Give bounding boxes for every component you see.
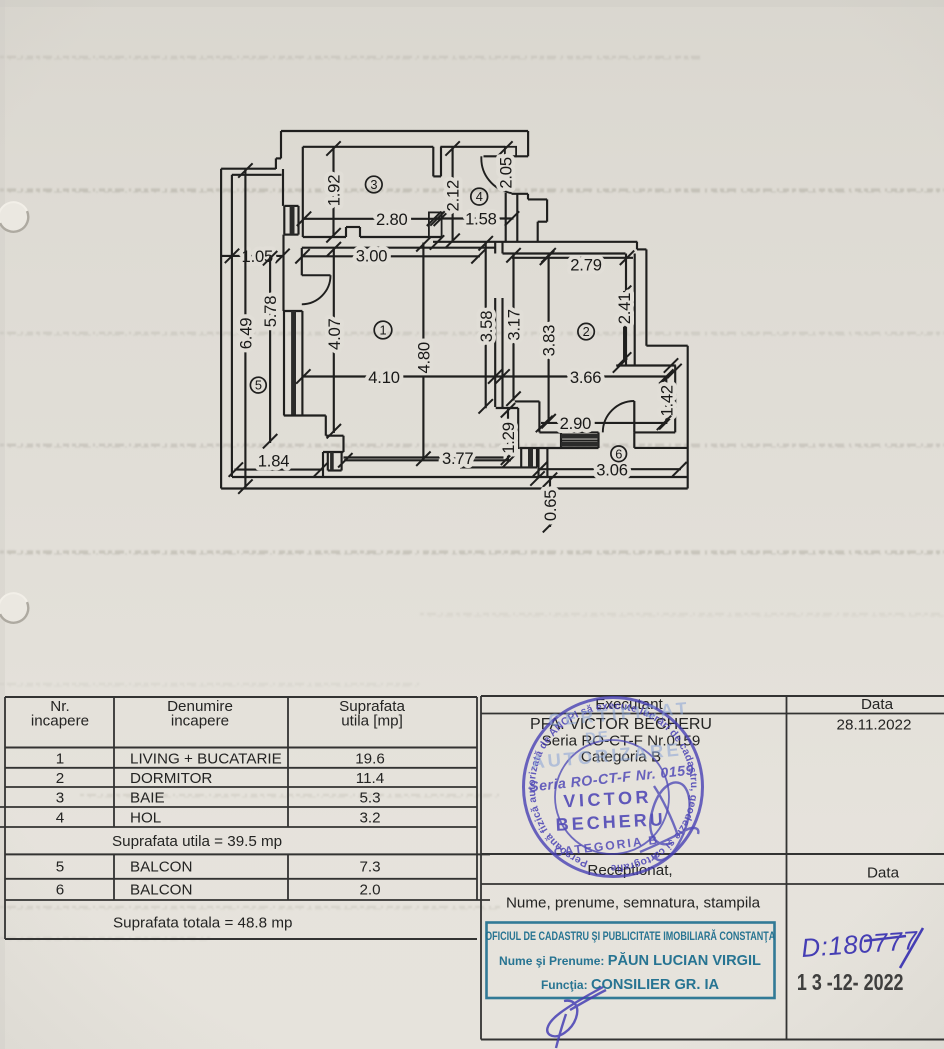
svg-text:2: 2 [583,324,590,339]
svg-text:OFICIUL DE CADASTRU ŞI PUBLICI: OFICIUL DE CADASTRU ŞI PUBLICITATE IMOBI… [485,929,776,944]
svg-text:4.80: 4.80 [415,342,434,374]
svg-text:5.3: 5.3 [359,790,380,807]
svg-text:1 3 -12- 2022: 1 3 -12- 2022 [797,970,904,996]
svg-text:7.3: 7.3 [359,859,380,876]
svg-text:5: 5 [255,378,262,393]
svg-text:4: 4 [476,189,483,204]
svg-text:5.78: 5.78 [261,296,280,328]
svg-text:3: 3 [370,177,377,192]
svg-text:3.66: 3.66 [570,368,602,387]
svg-text:3.77: 3.77 [442,449,474,468]
svg-text:Data: Data [867,865,900,882]
svg-text:3.17: 3.17 [505,309,524,341]
svg-text:6: 6 [56,882,64,899]
svg-text:1.58: 1.58 [465,210,497,229]
svg-text:incapere: incapere [31,713,89,730]
svg-text:BAIE: BAIE [130,790,165,807]
svg-text:11.4: 11.4 [356,770,384,787]
svg-text:4.10: 4.10 [368,368,400,387]
svg-text:19.6: 19.6 [355,751,385,768]
svg-text:1.84: 1.84 [258,451,290,470]
svg-text:3.00: 3.00 [356,247,388,266]
svg-text:3.06: 3.06 [596,461,628,480]
svg-text:3.58: 3.58 [477,311,496,343]
svg-text:3.83: 3.83 [540,325,559,357]
svg-text:2.80: 2.80 [376,210,408,229]
svg-text:2.41: 2.41 [615,293,634,325]
svg-text:28.11.2022: 28.11.2022 [837,717,912,734]
svg-text:2: 2 [56,770,64,787]
svg-text:BALCON: BALCON [130,882,192,899]
svg-text:2.05: 2.05 [497,157,516,189]
svg-text:3: 3 [56,790,64,807]
svg-text:6: 6 [615,446,622,461]
svg-text:2.79: 2.79 [570,255,602,274]
svg-text:Suprafata utila = 39.5 mp: Suprafata utila = 39.5 mp [112,833,282,850]
svg-text:3.2: 3.2 [359,810,380,827]
svg-text:LIVING + BUCATARIE: LIVING + BUCATARIE [130,751,282,768]
svg-text:2.90: 2.90 [560,414,592,433]
svg-text:Suprafata totala = 48.8 mp: Suprafata totala = 48.8 mp [113,915,292,932]
svg-text:Funcţia: CONSILIER GR. IA: Funcţia: CONSILIER GR. IA [541,977,720,993]
svg-text:0.65: 0.65 [541,490,560,522]
svg-text:1: 1 [56,751,64,768]
svg-text:BALCON: BALCON [130,859,192,876]
svg-text:incapere: incapere [171,713,229,730]
svg-text:Nume, prenume, semnatura, stam: Nume, prenume, semnatura, stampila [506,895,761,912]
svg-text:4: 4 [56,810,64,827]
svg-text:5: 5 [56,859,64,876]
svg-text:4.07: 4.07 [325,318,344,350]
svg-text:Data: Data [861,696,894,713]
svg-text:HOL: HOL [130,810,161,827]
svg-text:1.42: 1.42 [657,385,676,417]
svg-text:2.0: 2.0 [359,882,380,899]
svg-text:1.29: 1.29 [499,422,518,454]
svg-text:1.92: 1.92 [325,175,344,207]
svg-text:6.49: 6.49 [237,318,256,350]
svg-text:2.12: 2.12 [444,180,463,212]
svg-text:1: 1 [380,323,387,338]
svg-text:DORMITOR: DORMITOR [130,770,212,787]
svg-text:utila [mp]: utila [mp] [341,713,403,730]
svg-text:Nume şi Prenume: PĂUN LUCIAN V: Nume şi Prenume: PĂUN LUCIAN VIRGIL [499,952,761,969]
